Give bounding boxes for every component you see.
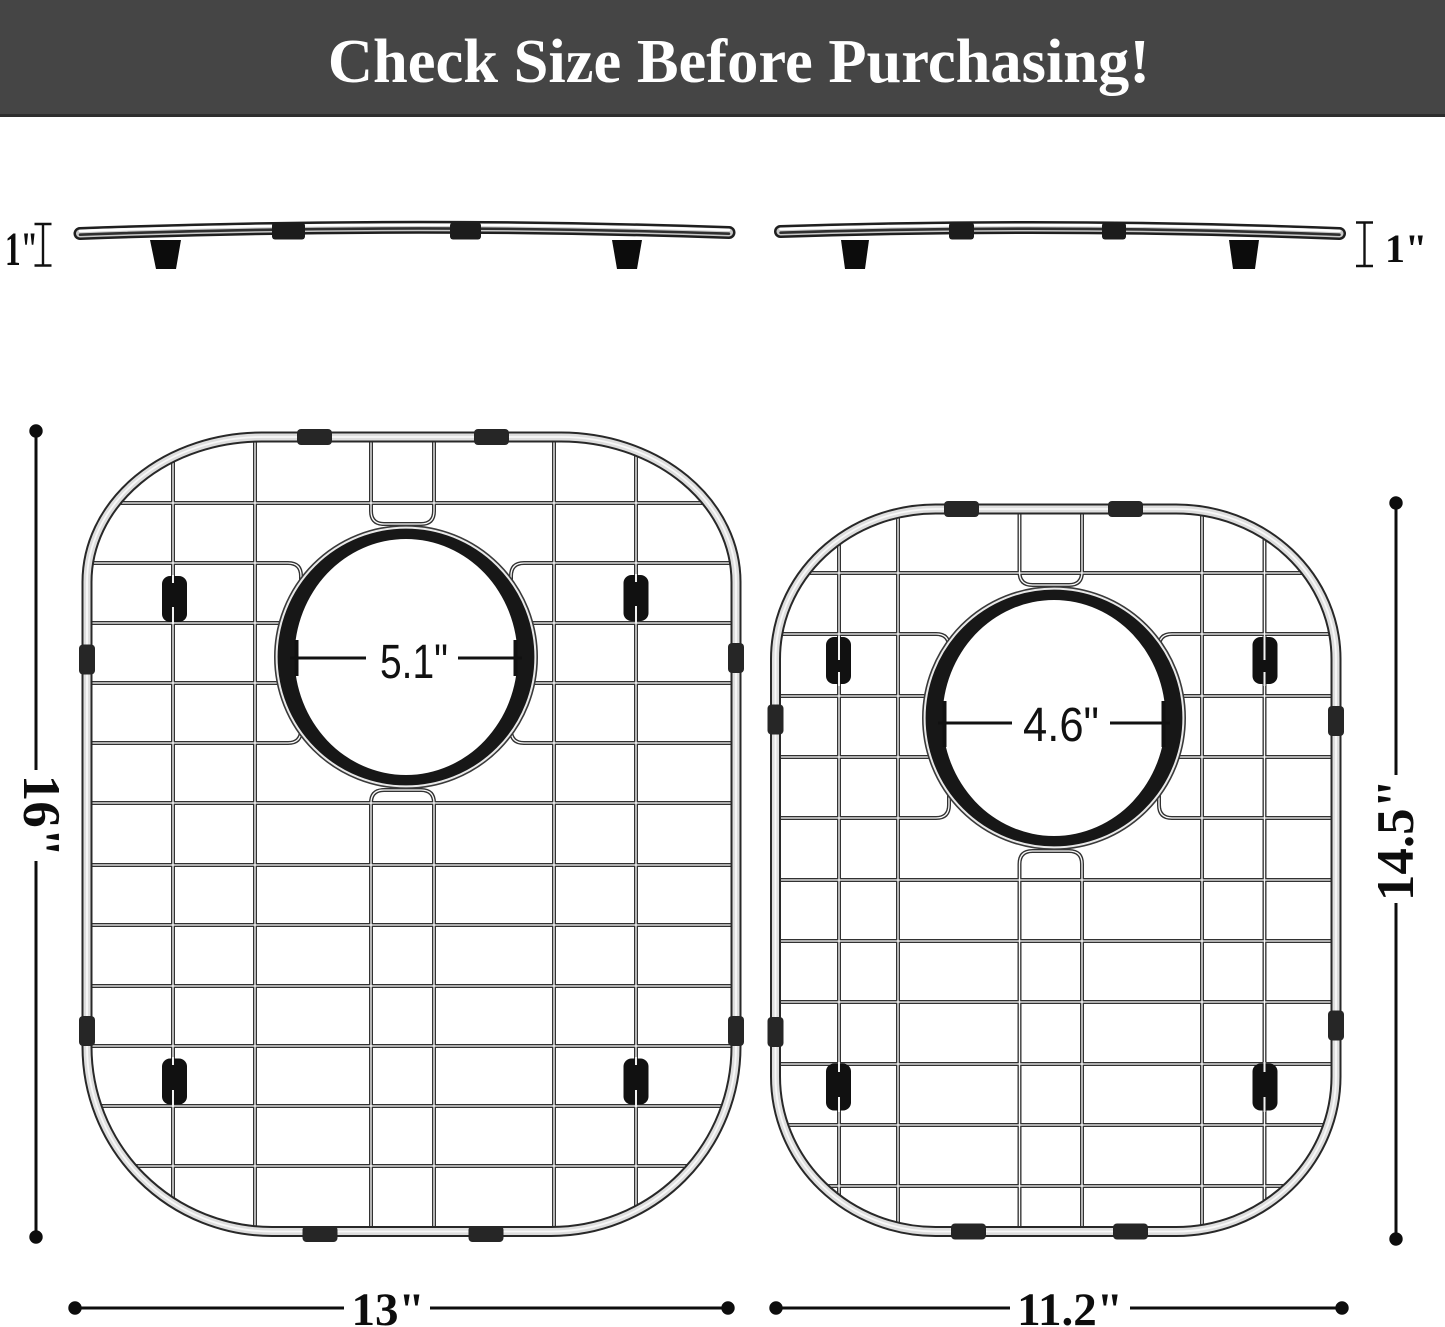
svg-text:16": 16" [12, 775, 70, 857]
svg-text:5.1": 5.1" [380, 636, 448, 689]
svg-text:1": 1" [5, 223, 38, 276]
svg-text:13": 13" [351, 1284, 424, 1327]
svg-text:14.5": 14.5" [1367, 779, 1425, 901]
svg-text:Check Size Before Purchasing!: Check Size Before Purchasing! [328, 26, 1150, 96]
svg-text:11.2": 11.2" [1017, 1284, 1123, 1327]
svg-text:1": 1" [1385, 226, 1427, 271]
svg-text:4.6": 4.6" [1023, 699, 1099, 752]
